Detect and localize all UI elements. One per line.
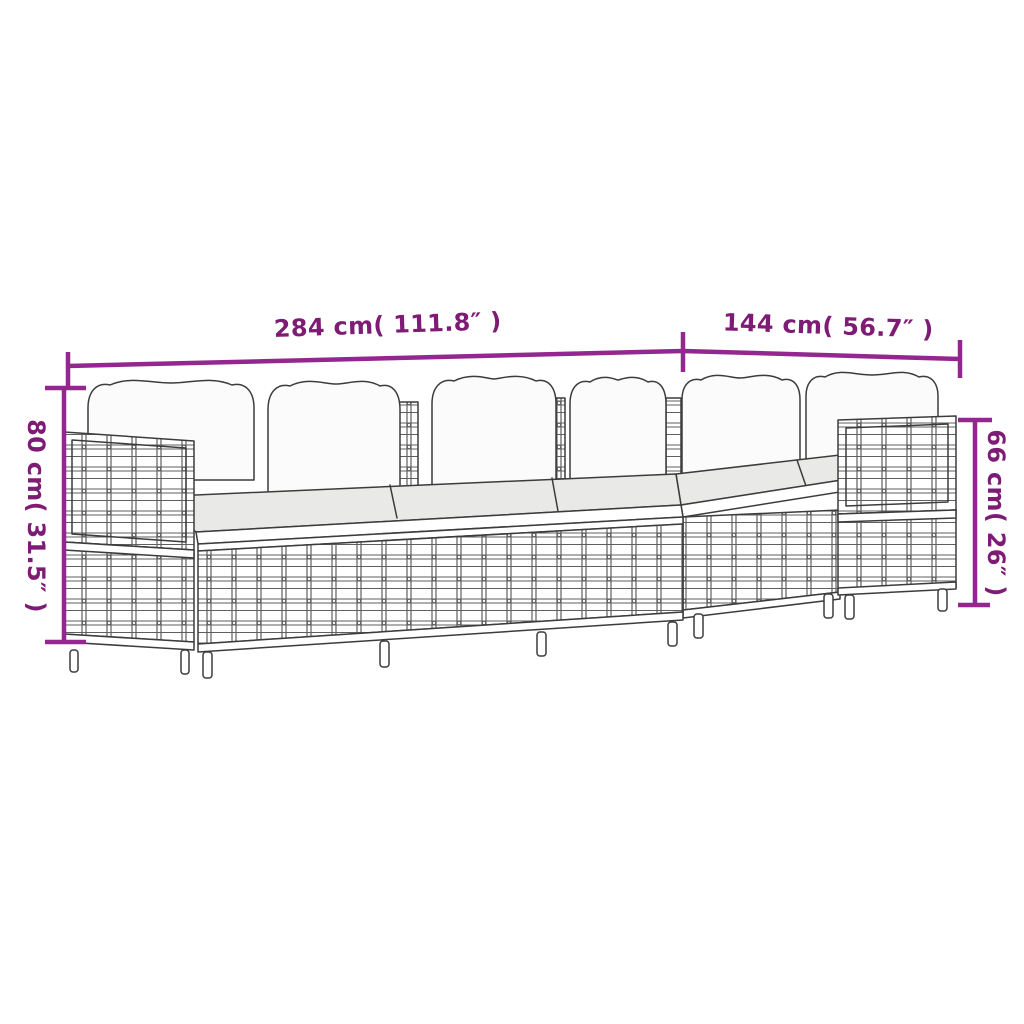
leg bbox=[845, 595, 854, 619]
sofa-drawing bbox=[64, 372, 956, 678]
leg bbox=[70, 650, 78, 672]
armrest-weave-panel bbox=[64, 432, 194, 550]
leg bbox=[938, 589, 947, 611]
back-cushion bbox=[268, 381, 400, 495]
leg bbox=[380, 641, 389, 667]
armrest-weave-panel bbox=[838, 416, 956, 514]
dimension-line bbox=[68, 351, 683, 366]
dim-label-side-width: 144 cm( 56.7″ ) bbox=[722, 308, 934, 343]
dimension-line bbox=[683, 351, 960, 359]
leg bbox=[537, 632, 546, 656]
dim-label-back-height: 80 cm( 31.5″ ) bbox=[22, 419, 50, 613]
leg bbox=[181, 650, 189, 674]
dim-label-arm-height: 66 cm( 26″ ) bbox=[982, 429, 1010, 596]
leg bbox=[824, 594, 833, 618]
left-armrest bbox=[64, 432, 194, 674]
back-cushion bbox=[432, 376, 556, 495]
leg bbox=[694, 614, 703, 638]
dim-side-width-line bbox=[683, 340, 960, 378]
diagram-canvas: 284 cm( 111.8″ ) 144 cm( 56.7″ ) 80 cm( … bbox=[0, 0, 1024, 1024]
dim-label-total-width: 284 cm( 111.8″ ) bbox=[273, 307, 502, 343]
dim-total-width-line bbox=[68, 332, 683, 386]
corner-base-weave bbox=[838, 510, 956, 594]
right-armrest bbox=[838, 416, 956, 619]
product-dimension-image: 284 cm( 111.8″ ) 144 cm( 56.7″ ) 80 cm( … bbox=[0, 0, 1024, 1024]
leg bbox=[203, 652, 212, 678]
front-row bbox=[150, 474, 683, 678]
leg bbox=[668, 622, 677, 646]
